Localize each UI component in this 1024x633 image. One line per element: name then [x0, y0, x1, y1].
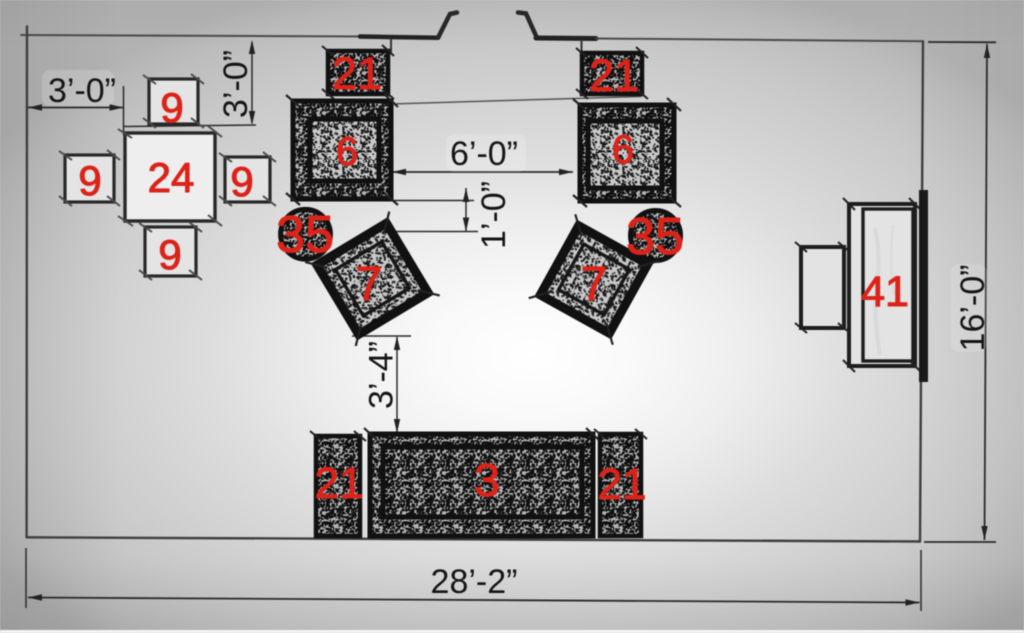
svg-text:24: 24	[148, 154, 195, 201]
svg-text:35: 35	[276, 206, 334, 264]
svg-text:9: 9	[230, 158, 253, 205]
svg-text:21: 21	[589, 50, 639, 101]
svg-text:9: 9	[78, 157, 101, 204]
svg-text:3’-0”: 3’-0”	[217, 50, 255, 118]
svg-text:41: 41	[861, 268, 909, 316]
svg-text:6’-0”: 6’-0”	[450, 135, 518, 173]
svg-text:21: 21	[598, 460, 647, 509]
svg-text:16’-0”: 16’-0”	[954, 265, 992, 352]
svg-text:7: 7	[356, 258, 383, 311]
svg-text:7: 7	[581, 258, 608, 311]
svg-text:6: 6	[612, 128, 634, 172]
svg-text:28’-2”: 28’-2”	[431, 563, 518, 601]
svg-text:3’-0”: 3’-0”	[48, 72, 116, 110]
svg-text:21: 21	[315, 459, 364, 508]
svg-text:9: 9	[160, 84, 183, 131]
svg-text:3’-4”: 3’-4”	[363, 341, 401, 409]
svg-text:3: 3	[474, 454, 500, 506]
svg-text:9: 9	[158, 231, 181, 278]
svg-text:1’-0”: 1’-0”	[475, 181, 513, 249]
svg-text:35: 35	[626, 208, 684, 266]
svg-text:6: 6	[336, 130, 358, 174]
svg-text:21: 21	[332, 48, 382, 99]
